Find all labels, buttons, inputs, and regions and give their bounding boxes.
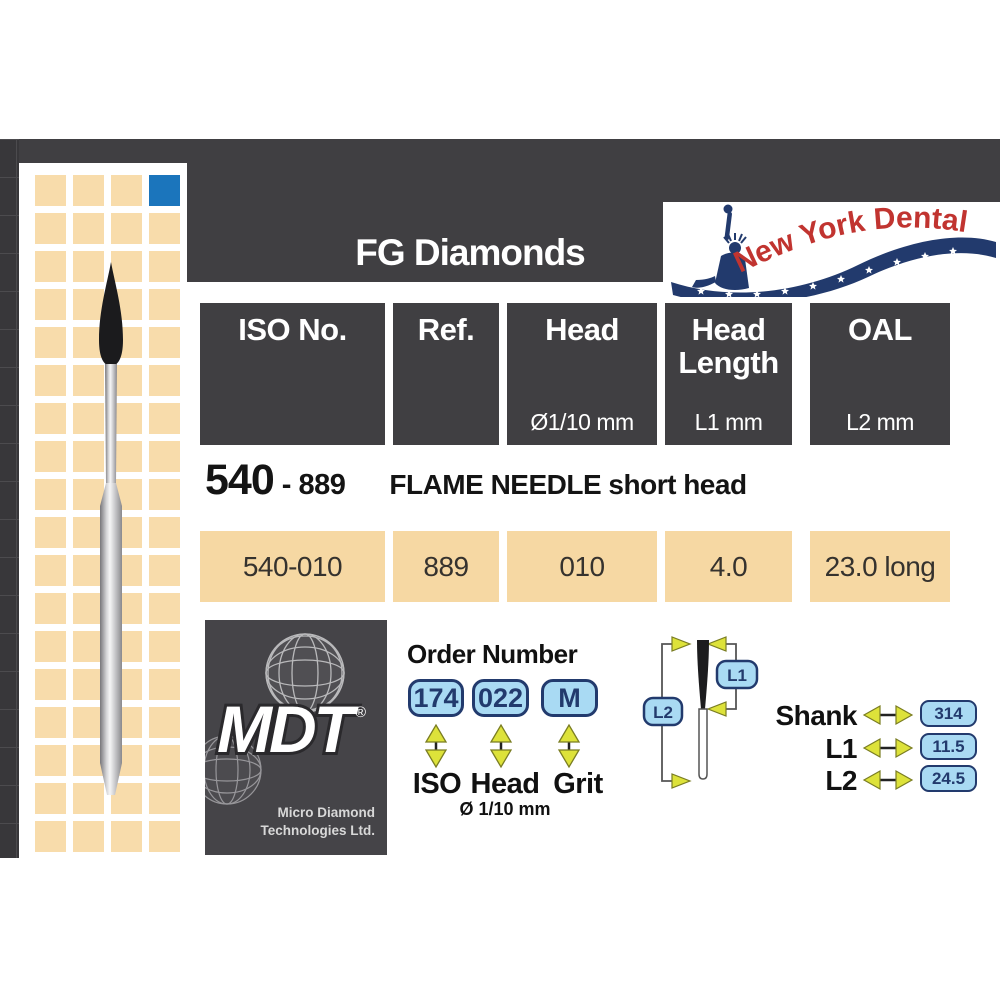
order-grit-badge: M xyxy=(541,679,598,717)
col-header-label: Ref. xyxy=(393,313,499,346)
cell-iso-no: 540-010 xyxy=(200,531,385,602)
dim-shank-value: 314 xyxy=(920,700,977,727)
product-name: FLAME NEEDLE short head xyxy=(389,469,746,501)
order-iso-badge: 174 xyxy=(408,679,464,717)
order-head-unit: Ø 1/10 mm xyxy=(450,799,560,820)
col-header-unit: L1 mm xyxy=(665,409,792,436)
blue-grid-marker xyxy=(149,175,180,206)
mdt-company-line2: Technologies Ltd. xyxy=(261,823,376,838)
mdt-logo-box: MDT ® Micro Diamond Technologies Ltd. xyxy=(205,620,387,855)
bur-shank xyxy=(100,506,122,763)
svg-text:L2: L2 xyxy=(653,703,673,722)
bur-photo xyxy=(81,258,141,798)
col-header-label: OAL xyxy=(810,313,950,346)
svg-text:L1: L1 xyxy=(727,666,747,685)
dim-shank-label: Shank xyxy=(740,700,857,732)
order-head-label: Head xyxy=(465,768,545,801)
cell-head-length: 4.0 xyxy=(665,531,792,602)
bur-neck xyxy=(105,364,117,483)
l2-arrow-top-icon xyxy=(672,637,690,651)
col-header-ref: Ref. xyxy=(393,303,499,445)
cell-ref: 889 xyxy=(393,531,499,602)
l1-tag-badge: L1 xyxy=(717,661,757,688)
dim-l1-value: 11.5 xyxy=(920,733,977,760)
mdt-logo: MDT ® Micro Diamond Technologies Ltd. xyxy=(205,620,387,855)
product-title-row: 540 - 889 FLAME NEEDLE short head xyxy=(205,456,965,514)
double-arrow-horizontal-icon xyxy=(862,704,914,726)
col-header-head: Head Ø1/10 mm xyxy=(507,303,657,445)
bur-head xyxy=(99,262,123,366)
double-arrow-vertical-icon xyxy=(423,722,449,770)
order-number-title: Order Number xyxy=(407,639,667,670)
dim-l1-label: L1 xyxy=(740,733,857,765)
registered-mark: ® xyxy=(355,704,366,721)
l1-arrow-bottom-icon xyxy=(708,702,726,716)
cell-head: 010 xyxy=(507,531,657,602)
col-header-unit: L2 mm xyxy=(810,409,950,436)
page-edge-ruler-line xyxy=(16,139,17,858)
product-series: 540 xyxy=(205,456,274,505)
col-header-label: ISO No. xyxy=(200,313,385,346)
brand-logo-box: New York Dental xyxy=(663,202,1000,297)
l2-arrow-bottom-icon xyxy=(672,774,690,788)
col-header-label: Head xyxy=(665,313,792,346)
cell-oal: 23.0 long xyxy=(810,531,950,602)
l1-arrow-top-icon xyxy=(708,637,726,651)
col-header-label: Head xyxy=(507,313,657,346)
diagram-bur-shank xyxy=(699,709,707,779)
bur-tip xyxy=(100,763,122,795)
product-photo-panel xyxy=(19,163,187,853)
col-header-oal: OAL L2 mm xyxy=(810,303,950,445)
col-header-label2: Length xyxy=(665,346,792,379)
double-arrow-vertical-icon xyxy=(556,722,582,770)
catalog-card: FG Diamonds xyxy=(0,0,1000,1000)
mdt-company-line1: Micro Diamond xyxy=(277,805,375,820)
double-arrow-horizontal-icon xyxy=(862,769,914,791)
col-header-head-length: Head Length L1 mm xyxy=(665,303,792,445)
diagram-bur-head xyxy=(697,640,709,709)
order-iso-label: ISO xyxy=(407,768,467,801)
bur-shoulder xyxy=(100,483,122,506)
new-york-dental-logo: New York Dental xyxy=(663,202,1000,297)
category-title: FG Diamonds xyxy=(250,224,690,282)
dim-l2-value: 24.5 xyxy=(920,765,977,792)
l2-tag-badge: L2 xyxy=(644,698,682,725)
double-arrow-vertical-icon xyxy=(488,722,514,770)
order-head-badge: 022 xyxy=(472,679,529,717)
order-grit-label: Grit xyxy=(548,768,608,801)
col-header-iso: ISO No. xyxy=(200,303,385,445)
mdt-wordmark: MDT xyxy=(217,692,359,766)
double-arrow-horizontal-icon xyxy=(862,737,914,759)
col-header-unit: Ø1/10 mm xyxy=(507,409,657,436)
product-ref: - 889 xyxy=(282,469,346,502)
dim-l2-label: L2 xyxy=(740,765,857,797)
